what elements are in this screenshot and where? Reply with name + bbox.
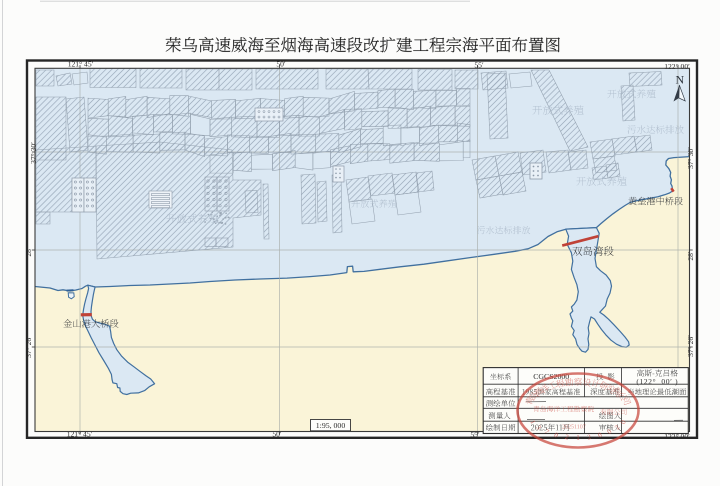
svg-text:37° 26′: 37° 26′: [24, 336, 33, 358]
svg-text:28′: 28′: [24, 247, 33, 257]
svg-text:122° 00′: 122° 00′: [664, 62, 690, 71]
svg-text:1: 1: [576, 434, 580, 442]
svg-text:1:95, 000: 1:95, 000: [316, 421, 346, 430]
svg-text:20251107: 20251107: [562, 425, 586, 431]
svg-text:28′: 28′: [686, 251, 695, 261]
svg-text:37° 30′: 37° 30′: [29, 142, 38, 164]
svg-text:N: N: [675, 73, 684, 87]
svg-text:(122° 00′ ): (122° 00′ ): [636, 377, 678, 386]
svg-text:37° 26′: 37° 26′: [686, 335, 695, 357]
svg-text:37° 30′: 37° 30′: [686, 147, 695, 169]
